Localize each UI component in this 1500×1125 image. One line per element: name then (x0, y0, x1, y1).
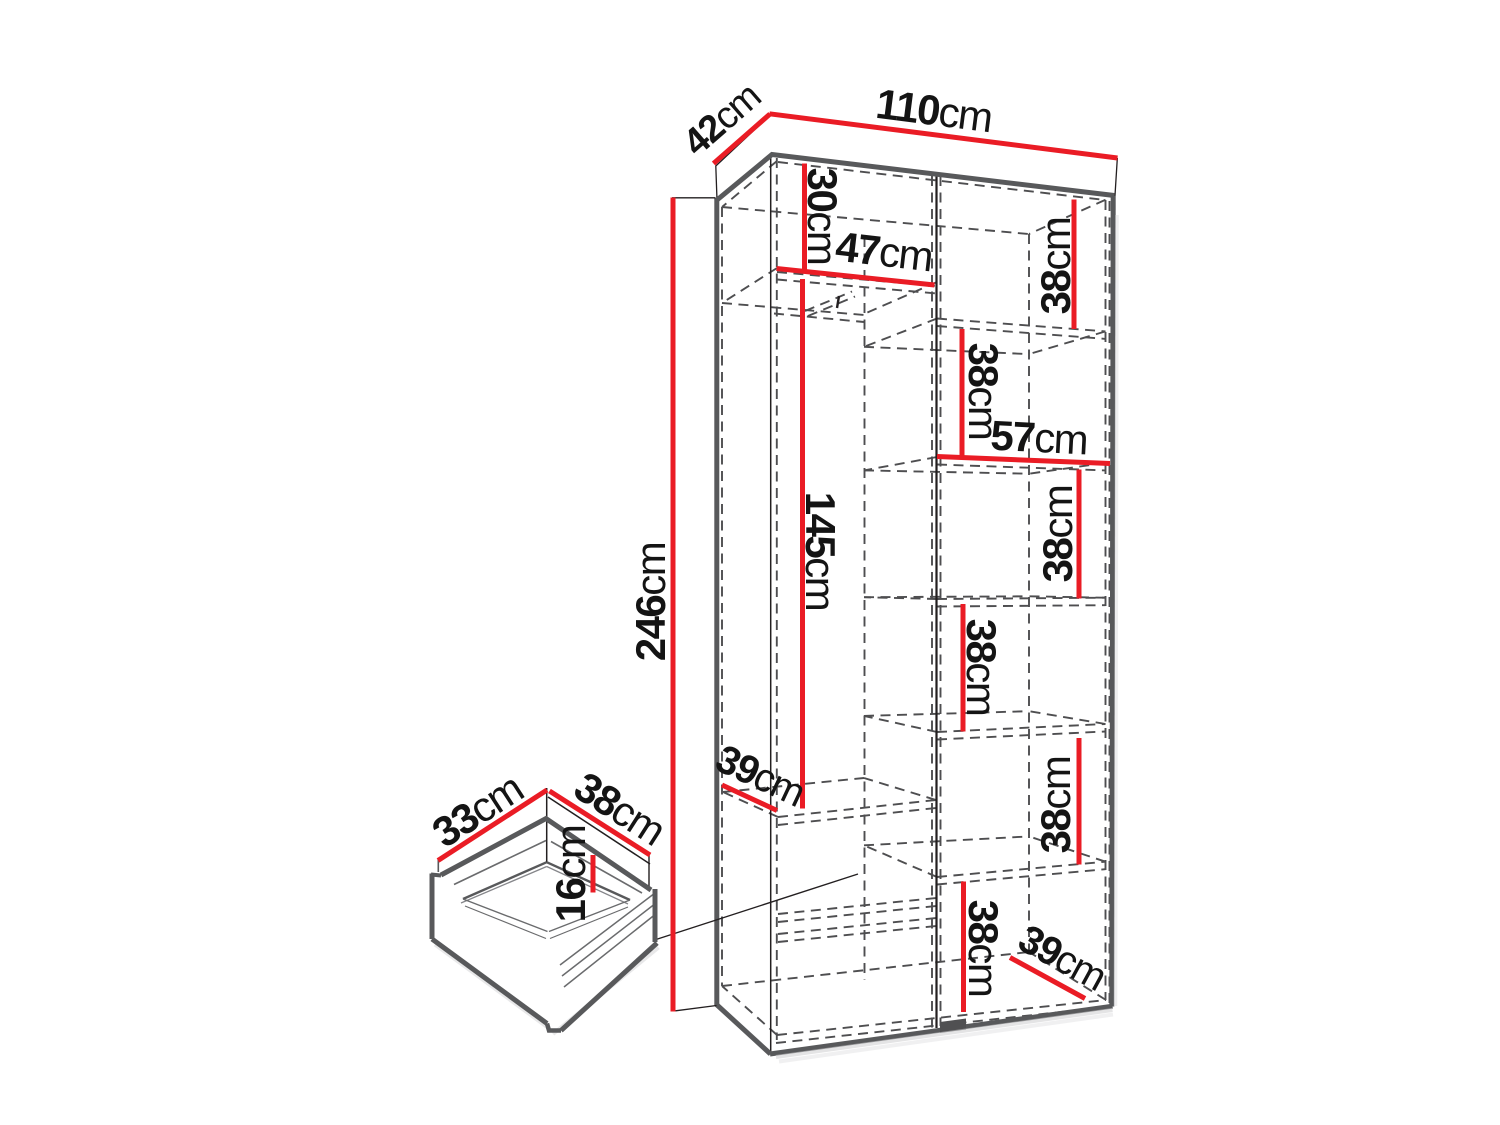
svg-text:57cm: 57cm (989, 411, 1088, 463)
svg-text:145cm: 145cm (798, 492, 845, 611)
svg-text:38cm: 38cm (1034, 486, 1081, 583)
svg-text:16cm: 16cm (547, 826, 594, 923)
svg-text:38cm: 38cm (1032, 218, 1079, 315)
svg-text:38cm: 38cm (961, 900, 1008, 997)
svg-text:38cm: 38cm (959, 619, 1006, 716)
svg-text:38cm: 38cm (1032, 757, 1079, 854)
svg-text:246cm: 246cm (627, 543, 674, 662)
